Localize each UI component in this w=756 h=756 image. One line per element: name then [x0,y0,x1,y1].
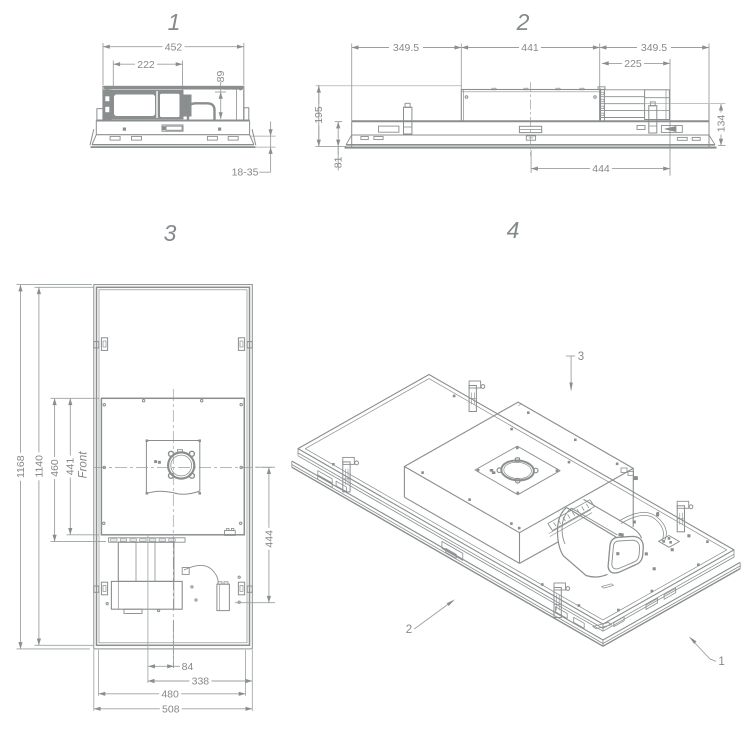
svg-text:508: 508 [162,703,180,715]
svg-text:1: 1 [168,9,181,35]
svg-text:81: 81 [333,156,345,168]
svg-text:349.5: 349.5 [641,42,667,54]
svg-text:89: 89 [215,71,227,83]
svg-text:1: 1 [718,656,724,668]
svg-text:2: 2 [406,624,412,636]
svg-text:1168: 1168 [15,455,27,478]
svg-text:349.5: 349.5 [393,42,419,54]
svg-text:3: 3 [164,220,177,246]
svg-text:480: 480 [161,688,179,700]
svg-text:441: 441 [65,458,77,476]
svg-text:18-35: 18-35 [232,166,259,178]
svg-text:3: 3 [578,351,584,363]
svg-text:Front: Front [78,451,90,479]
svg-text:444: 444 [263,530,275,548]
svg-text:2: 2 [516,9,530,35]
svg-text:1140: 1140 [33,455,45,478]
svg-text:222: 222 [137,59,155,71]
svg-text:338: 338 [192,676,210,688]
svg-text:460: 460 [49,459,61,477]
svg-text:225: 225 [624,58,642,70]
svg-text:444: 444 [592,163,610,175]
svg-text:134: 134 [715,115,727,133]
svg-text:84: 84 [182,661,194,673]
svg-text:195: 195 [313,106,325,124]
svg-text:441: 441 [521,42,539,54]
svg-text:4: 4 [507,217,520,243]
svg-text:452: 452 [165,41,183,53]
